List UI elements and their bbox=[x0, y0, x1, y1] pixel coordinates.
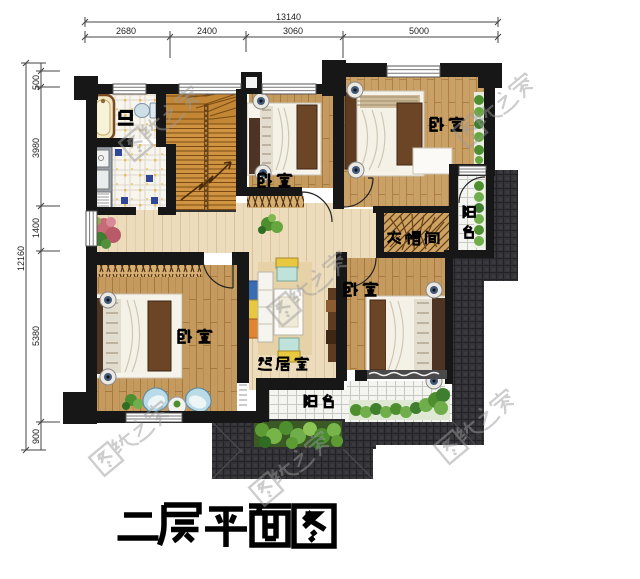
svg-text:2400: 2400 bbox=[197, 26, 217, 36]
svg-text:12160: 12160 bbox=[16, 246, 26, 271]
svg-text:3060: 3060 bbox=[283, 26, 303, 36]
svg-text:5380: 5380 bbox=[31, 326, 41, 346]
svg-text:2680: 2680 bbox=[116, 26, 136, 36]
svg-text:900: 900 bbox=[31, 429, 41, 444]
svg-text:500: 500 bbox=[31, 75, 41, 90]
svg-text:1400: 1400 bbox=[31, 218, 41, 238]
svg-text:13140: 13140 bbox=[276, 12, 301, 22]
svg-text:3980: 3980 bbox=[31, 138, 41, 158]
svg-text:5000: 5000 bbox=[409, 26, 429, 36]
